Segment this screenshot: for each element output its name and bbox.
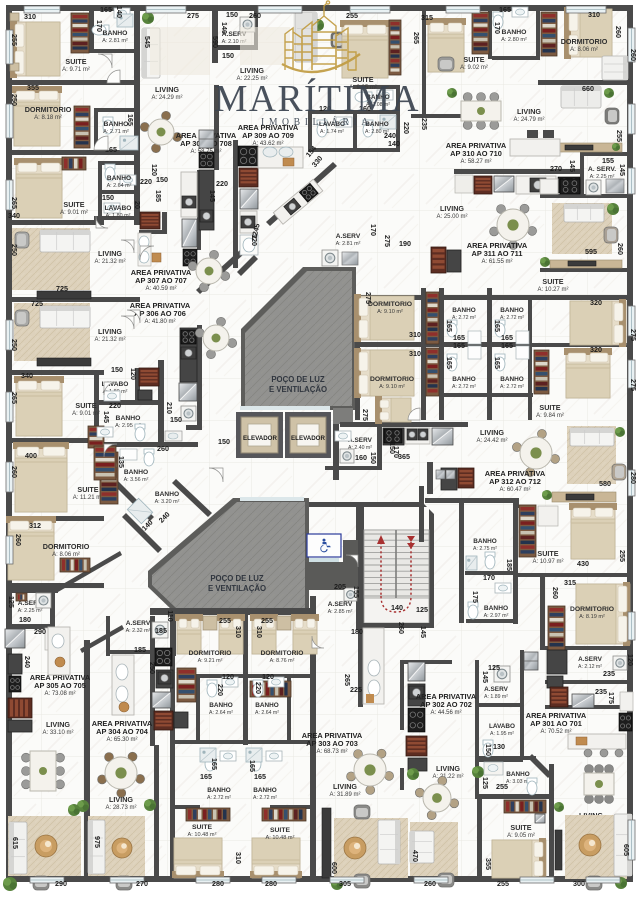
svg-text:155: 155 (602, 156, 614, 165)
svg-text:A: 1.89 m²: A: 1.89 m² (484, 694, 508, 700)
svg-text:A: 2.64 m²: A: 2.64 m² (209, 710, 233, 716)
svg-text:310: 310 (24, 12, 36, 21)
svg-text:A: 8.06 m²: A: 8.06 m² (570, 47, 598, 53)
svg-text:AP 302 AO 702: AP 302 AO 702 (420, 700, 472, 709)
svg-text:150: 150 (102, 193, 114, 202)
svg-text:A: 24.79 m²: A: 24.79 m² (513, 117, 544, 123)
svg-text:190: 190 (399, 239, 411, 248)
svg-text:A: 1.80 m²: A: 1.80 m² (106, 213, 131, 219)
svg-text:DORMITORIO: DORMITORIO (43, 542, 90, 551)
svg-text:150: 150 (218, 437, 230, 446)
svg-text:310: 310 (409, 330, 421, 339)
svg-text:150: 150 (170, 415, 182, 424)
svg-text:A: 9.10 m²: A: 9.10 m² (377, 309, 403, 315)
svg-text:A: 10.48 m²: A: 10.48 m² (266, 835, 295, 841)
svg-text:140: 140 (115, 6, 124, 18)
svg-text:BANHO: BANHO (207, 787, 230, 794)
svg-text:DORMITORIO: DORMITORIO (189, 650, 232, 657)
svg-text:110: 110 (166, 610, 175, 622)
svg-text:310: 310 (588, 10, 600, 19)
svg-text:140: 140 (388, 139, 400, 148)
svg-text:BANHO: BANHO (209, 702, 232, 709)
svg-text:A: 9.10 m²: A: 9.10 m² (379, 384, 405, 390)
svg-text:A: 9.01 m²: A: 9.01 m² (60, 210, 88, 216)
svg-text:A: 9.84 m²: A: 9.84 m² (536, 413, 564, 419)
svg-text:430: 430 (577, 559, 589, 568)
svg-text:A: 73.08 m²: A: 73.08 m² (44, 691, 75, 697)
svg-text:160: 160 (355, 453, 367, 462)
svg-text:260: 260 (157, 444, 169, 453)
svg-text:A: 9.71 m²: A: 9.71 m² (62, 67, 90, 73)
svg-text:LIVING: LIVING (440, 204, 464, 213)
svg-text:E VENTILAÇÃO: E VENTILAÇÃO (269, 385, 327, 394)
svg-text:BANHO: BANHO (116, 415, 141, 422)
svg-text:DORMITORIO: DORMITORIO (370, 376, 414, 383)
svg-text:275: 275 (187, 11, 199, 20)
svg-text:AP 312 AO 712: AP 312 AO 712 (489, 477, 541, 486)
svg-text:260: 260 (397, 622, 406, 634)
svg-text:120: 120 (626, 654, 635, 666)
svg-text:310: 310 (234, 852, 243, 864)
svg-text:A: 2.72 m²: A: 2.72 m² (253, 795, 277, 801)
svg-text:165: 165 (200, 772, 212, 781)
svg-text:315: 315 (421, 13, 433, 22)
svg-text:255: 255 (618, 550, 627, 562)
svg-text:615: 615 (11, 837, 20, 849)
svg-text:545: 545 (143, 36, 152, 48)
svg-text:A: 11.21 m²: A: 11.21 m² (73, 495, 104, 501)
svg-text:265: 265 (412, 32, 421, 44)
svg-text:BANHO: BANHO (452, 376, 475, 383)
svg-text:150: 150 (222, 51, 234, 60)
svg-text:A: 2.81 m²: A: 2.81 m² (102, 38, 128, 44)
svg-text:255: 255 (261, 616, 273, 625)
svg-text:AP 301 AO 701: AP 301 AO 701 (530, 719, 582, 728)
svg-text:150: 150 (484, 744, 493, 756)
svg-text:A: 2.80 m²: A: 2.80 m² (501, 37, 527, 43)
svg-text:165: 165 (210, 758, 219, 770)
svg-text:A: 21.22 m²: A: 21.22 m² (432, 774, 463, 780)
svg-text:290: 290 (55, 879, 67, 888)
svg-text:A: 8.06 m²: A: 8.06 m² (52, 552, 80, 558)
svg-text:SUITE: SUITE (65, 57, 86, 66)
svg-text:A. SERV.: A. SERV. (588, 166, 616, 173)
svg-text:A: 2.64 m²: A: 2.64 m² (107, 183, 132, 189)
svg-text:A: 65.30 m²: A: 65.30 m² (106, 737, 137, 743)
svg-text:DORMITORIO: DORMITORIO (25, 105, 72, 114)
svg-text:320: 320 (590, 345, 602, 354)
svg-text:IMOBILIÁRIA: IMOBILIÁRIA (261, 116, 373, 128)
svg-text:355: 355 (27, 83, 39, 92)
svg-text:220: 220 (216, 684, 225, 696)
svg-text:A: 3.20 m²: A: 3.20 m² (155, 499, 180, 505)
svg-text:135: 135 (117, 456, 126, 468)
svg-text:A: 44.56 m²: A: 44.56 m² (430, 710, 461, 716)
svg-text:300: 300 (573, 879, 585, 888)
svg-text:SUITE: SUITE (510, 823, 531, 832)
svg-text:580: 580 (599, 479, 611, 488)
svg-text:275: 275 (383, 235, 392, 247)
svg-text:A: 41.80 m²: A: 41.80 m² (144, 319, 175, 325)
svg-text:125: 125 (416, 605, 428, 614)
svg-text:265: 265 (10, 197, 19, 209)
svg-text:A: 9.02 m²: A: 9.02 m² (460, 65, 488, 71)
svg-text:A: 2.32 m²: A: 2.32 m² (126, 628, 151, 634)
svg-text:315: 315 (564, 578, 576, 587)
svg-text:MARÍTIMA: MARÍTIMA (214, 78, 420, 120)
svg-text:BANHO: BANHO (502, 29, 527, 36)
svg-text:260: 260 (424, 879, 436, 888)
svg-text:A.SERV: A.SERV (336, 233, 361, 240)
svg-text:725: 725 (56, 284, 68, 293)
svg-text:LIVING: LIVING (98, 249, 122, 258)
svg-text:SUITE: SUITE (537, 549, 558, 558)
svg-text:AP 305 AO 705: AP 305 AO 705 (34, 681, 86, 690)
svg-text:A: 58.27 m²: A: 58.27 m² (460, 159, 491, 165)
svg-text:SUITE: SUITE (539, 403, 560, 412)
svg-text:A: 10.27 m²: A: 10.27 m² (537, 287, 568, 293)
svg-text:BANHO: BANHO (253, 787, 276, 794)
svg-text:BANHO: BANHO (103, 30, 128, 37)
svg-text:BANHO: BANHO (124, 469, 148, 476)
svg-text:SUITE: SUITE (77, 485, 98, 494)
svg-text:165: 165 (493, 357, 502, 369)
svg-text:265: 265 (10, 392, 19, 404)
svg-text:290: 290 (34, 627, 46, 636)
svg-text:260: 260 (629, 49, 638, 61)
svg-text:470: 470 (411, 850, 420, 862)
svg-text:725: 725 (31, 299, 43, 308)
svg-text:A: 9.05 m²: A: 9.05 m² (507, 833, 535, 839)
svg-text:180: 180 (351, 627, 363, 636)
svg-text:165: 165 (248, 760, 257, 772)
svg-text:A: 61.55 m²: A: 61.55 m² (481, 259, 512, 265)
svg-text:145: 145 (102, 411, 111, 423)
svg-text:BANHO: BANHO (500, 307, 523, 314)
svg-text:255: 255 (497, 879, 509, 888)
svg-text:280: 280 (629, 472, 638, 484)
svg-text:250: 250 (10, 244, 19, 256)
svg-text:A: 8.18 m²: A: 8.18 m² (34, 115, 62, 121)
svg-text:275: 275 (629, 379, 638, 391)
svg-text:145: 145 (481, 671, 490, 683)
svg-text:270: 270 (136, 879, 148, 888)
svg-text:260: 260 (614, 26, 623, 38)
svg-text:150: 150 (369, 452, 378, 464)
svg-text:SUITE: SUITE (63, 200, 84, 209)
svg-text:185: 185 (134, 645, 146, 654)
svg-text:120: 120 (129, 368, 138, 380)
svg-text:A: 68.73 m²: A: 68.73 m² (316, 749, 347, 755)
svg-text:205: 205 (334, 582, 346, 591)
svg-text:DORMITORIO: DORMITORIO (368, 301, 412, 308)
svg-text:LIVING: LIVING (46, 720, 70, 729)
svg-text:220: 220 (216, 179, 228, 188)
svg-text:20: 20 (133, 201, 142, 209)
svg-text:A: 70.52 m²: A: 70.52 m² (540, 729, 571, 735)
svg-text:150: 150 (156, 175, 168, 184)
svg-text:A: 1.95 m²: A: 1.95 m² (490, 731, 514, 737)
svg-text:120: 120 (250, 234, 259, 246)
svg-text:BANHO: BANHO (255, 702, 278, 709)
svg-text:LIVING: LIVING (333, 782, 357, 791)
svg-text:220: 220 (402, 122, 411, 134)
svg-text:BANHO: BANHO (500, 376, 523, 383)
svg-text:A: 10.48 m²: A: 10.48 m² (188, 832, 217, 838)
svg-text:155: 155 (352, 586, 361, 598)
svg-text:POÇO DE LUZ: POÇO DE LUZ (271, 375, 325, 384)
svg-text:A: 2.71 m²: A: 2.71 m² (103, 129, 129, 135)
svg-text:170: 170 (95, 20, 104, 32)
svg-text:LIVING: LIVING (109, 795, 133, 804)
svg-text:DORMITORIO: DORMITORIO (261, 650, 304, 657)
svg-text:260: 260 (249, 11, 261, 20)
svg-text:260: 260 (10, 466, 19, 478)
svg-text:A: 2.75 m²: A: 2.75 m² (473, 546, 497, 552)
svg-text:ELEVADOR: ELEVADOR (243, 435, 277, 442)
svg-text:145: 145 (618, 164, 627, 176)
svg-text:A: 21.32 m²: A: 21.32 m² (94, 259, 125, 265)
svg-text:LIVING: LIVING (155, 85, 179, 94)
svg-text:BANHO: BANHO (155, 491, 179, 498)
svg-text:310: 310 (255, 626, 264, 638)
svg-text:305: 305 (339, 879, 351, 888)
svg-text:DORMITORIO: DORMITORIO (570, 606, 614, 613)
svg-text:150: 150 (111, 365, 123, 374)
svg-text:250: 250 (10, 94, 19, 106)
svg-text:125: 125 (481, 777, 490, 789)
svg-text:312: 312 (29, 521, 41, 530)
svg-text:355: 355 (484, 858, 493, 870)
svg-text:275: 275 (629, 329, 638, 341)
svg-text:SUITE: SUITE (270, 827, 290, 834)
svg-text:250: 250 (10, 339, 19, 351)
svg-text:A.SERV: A.SERV (484, 686, 508, 693)
svg-text:A: 2.25 m²: A: 2.25 m² (18, 608, 43, 614)
svg-text:660: 660 (582, 84, 594, 93)
svg-text:LAVABO: LAVABO (489, 723, 515, 730)
svg-text:AP 310 AO 710: AP 310 AO 710 (450, 149, 502, 158)
svg-text:255: 255 (346, 11, 358, 20)
svg-text:140: 140 (220, 22, 229, 34)
svg-text:255: 255 (10, 34, 19, 46)
svg-text:170: 170 (392, 446, 401, 458)
svg-text:240: 240 (384, 131, 396, 140)
svg-text:A: 31.89 m²: A: 31.89 m² (329, 792, 360, 798)
svg-text:165: 165 (499, 5, 511, 14)
svg-text:225: 225 (350, 685, 362, 694)
svg-text:A: 2.72 m²: A: 2.72 m² (452, 384, 476, 390)
svg-text:165: 165 (254, 772, 266, 781)
svg-text:165: 165 (453, 341, 465, 350)
svg-text:130: 130 (493, 742, 505, 751)
svg-text:A: 28.73 m²: A: 28.73 m² (105, 805, 136, 811)
svg-text:A: 8.19 m²: A: 8.19 m² (579, 614, 605, 620)
svg-text:170: 170 (369, 224, 378, 236)
svg-text:BANHO: BANHO (506, 771, 529, 778)
svg-text:A: 2.81 m²: A: 2.81 m² (336, 241, 361, 247)
svg-text:255: 255 (219, 616, 231, 625)
svg-text:A: 2.85 m²: A: 2.85 m² (328, 609, 353, 615)
svg-text:275: 275 (364, 292, 373, 304)
svg-text:280: 280 (265, 879, 277, 888)
svg-text:220: 220 (109, 401, 121, 410)
svg-text:175: 175 (607, 692, 616, 704)
svg-text:165: 165 (493, 320, 502, 332)
svg-text:AP 307 AO 707: AP 307 AO 707 (135, 276, 187, 285)
svg-text:260: 260 (551, 587, 560, 599)
svg-text:165: 165 (100, 5, 112, 14)
svg-text:310: 310 (409, 349, 421, 358)
svg-text:A: 2.72 m²: A: 2.72 m² (500, 384, 524, 390)
svg-text:A: 40.59 m²: A: 40.59 m² (145, 286, 176, 292)
svg-text:AP 311 AO 711: AP 311 AO 711 (472, 249, 523, 258)
svg-text:A: 1.74 m²: A: 1.74 m² (320, 129, 344, 135)
svg-text:120: 120 (222, 672, 234, 681)
svg-text:BANHO: BANHO (473, 538, 496, 545)
svg-text:165: 165 (445, 320, 454, 332)
svg-text:280: 280 (212, 879, 224, 888)
svg-text:150: 150 (226, 10, 238, 19)
svg-text:A.SERV: A.SERV (328, 601, 353, 608)
svg-text:220: 220 (254, 682, 263, 694)
svg-text:A: 2.64 m²: A: 2.64 m² (255, 710, 279, 716)
svg-text:A: 60.47 m²: A: 60.47 m² (499, 487, 530, 493)
svg-text:180: 180 (19, 615, 31, 624)
svg-text:255: 255 (615, 130, 624, 142)
svg-text:125: 125 (7, 596, 16, 608)
svg-text:A.SERV: A.SERV (126, 620, 151, 627)
svg-text:170: 170 (493, 22, 502, 34)
svg-text:145: 145 (208, 190, 217, 202)
svg-text:185: 185 (155, 626, 167, 635)
svg-text:165: 165 (501, 341, 513, 350)
svg-text:A: 2.12 m²: A: 2.12 m² (578, 664, 602, 670)
svg-text:AP 303 AO 703: AP 303 AO 703 (306, 739, 358, 748)
svg-text:LIVING: LIVING (480, 428, 504, 437)
svg-text:260: 260 (616, 243, 625, 255)
svg-text:240: 240 (23, 656, 32, 668)
svg-text:BANHO: BANHO (104, 121, 129, 128)
svg-text:310: 310 (234, 626, 243, 638)
svg-text:120: 120 (262, 672, 274, 681)
svg-text:185: 185 (154, 190, 163, 202)
svg-text:165: 165 (126, 114, 135, 126)
svg-text:255: 255 (496, 782, 508, 791)
svg-text:605: 605 (622, 844, 631, 856)
svg-text:A.SERV: A.SERV (578, 656, 602, 663)
svg-text:145: 145 (419, 626, 428, 638)
svg-text:265: 265 (343, 674, 352, 686)
svg-text:A: 9.21 m²: A: 9.21 m² (198, 658, 223, 664)
svg-text:BANHO: BANHO (484, 605, 508, 612)
svg-text:LIVING: LIVING (240, 66, 264, 75)
svg-text:SUITE: SUITE (192, 824, 212, 831)
svg-text:320: 320 (590, 298, 602, 307)
svg-text:A: 10.97 m²: A: 10.97 m² (532, 559, 563, 565)
svg-text:A: 9.01 m²: A: 9.01 m² (72, 411, 100, 417)
svg-text:340: 340 (21, 371, 33, 380)
svg-text:A: 21.32 m²: A: 21.32 m² (94, 337, 125, 343)
svg-text:275: 275 (361, 409, 370, 421)
svg-text:SUITE: SUITE (75, 401, 96, 410)
svg-text:175: 175 (471, 591, 480, 603)
svg-text:165: 165 (445, 357, 454, 369)
svg-text:220: 220 (140, 177, 152, 186)
svg-text:A.SERV: A.SERV (348, 437, 372, 444)
svg-text:A: 33.10 m²: A: 33.10 m² (42, 730, 73, 736)
svg-text:600: 600 (330, 862, 339, 874)
svg-text:AP 309 AO 709: AP 309 AO 709 (242, 131, 294, 140)
svg-text:ELEVADOR: ELEVADOR (291, 435, 325, 442)
svg-text:185: 185 (505, 559, 514, 571)
svg-text:235: 235 (603, 669, 615, 678)
svg-text:260: 260 (14, 534, 23, 546)
svg-text:AP 304 AO 704: AP 304 AO 704 (96, 727, 149, 736)
svg-text:A: 24.29 m²: A: 24.29 m² (151, 95, 182, 101)
svg-text:170: 170 (483, 573, 495, 582)
svg-text:POÇO DE LUZ: POÇO DE LUZ (210, 574, 264, 583)
svg-text:400: 400 (25, 451, 37, 460)
svg-text:975: 975 (93, 836, 102, 848)
svg-text:SUITE: SUITE (463, 55, 484, 64)
svg-text:DORMITORIO: DORMITORIO (561, 37, 608, 46)
svg-text:BANHO: BANHO (107, 175, 131, 182)
svg-text:LIVING: LIVING (436, 764, 460, 773)
svg-text:235: 235 (595, 687, 607, 696)
svg-text:340: 340 (8, 211, 20, 220)
svg-text:210: 210 (165, 402, 174, 414)
svg-text:A: 8.76 m²: A: 8.76 m² (270, 658, 295, 664)
svg-text:LIVING: LIVING (517, 107, 541, 116)
svg-text:BANHO: BANHO (452, 307, 475, 314)
svg-text:LAVABO: LAVABO (105, 205, 132, 212)
svg-text:LIVING: LIVING (98, 327, 122, 336)
svg-text:A: 3.56 m²: A: 3.56 m² (124, 477, 149, 483)
svg-text:235: 235 (420, 118, 429, 130)
svg-text:145: 145 (568, 160, 577, 172)
svg-text:SUITE: SUITE (542, 277, 563, 286)
svg-text:590: 590 (211, 36, 220, 48)
svg-text:270: 270 (550, 164, 562, 173)
svg-text:AP 306 AO 706: AP 306 AO 706 (134, 309, 186, 318)
svg-text:A: 24.42 m²: A: 24.42 m² (476, 438, 507, 444)
svg-text:595: 595 (585, 247, 597, 256)
svg-text:A: 25.00 m²: A: 25.00 m² (436, 214, 467, 220)
svg-text:E VENTILAÇÃO: E VENTILAÇÃO (208, 584, 266, 593)
svg-text:250: 250 (148, 662, 157, 674)
svg-text:A: 2.72 m²: A: 2.72 m² (207, 795, 231, 801)
svg-text:140: 140 (391, 603, 403, 612)
svg-text:A: 2.97 m²: A: 2.97 m² (484, 613, 509, 619)
